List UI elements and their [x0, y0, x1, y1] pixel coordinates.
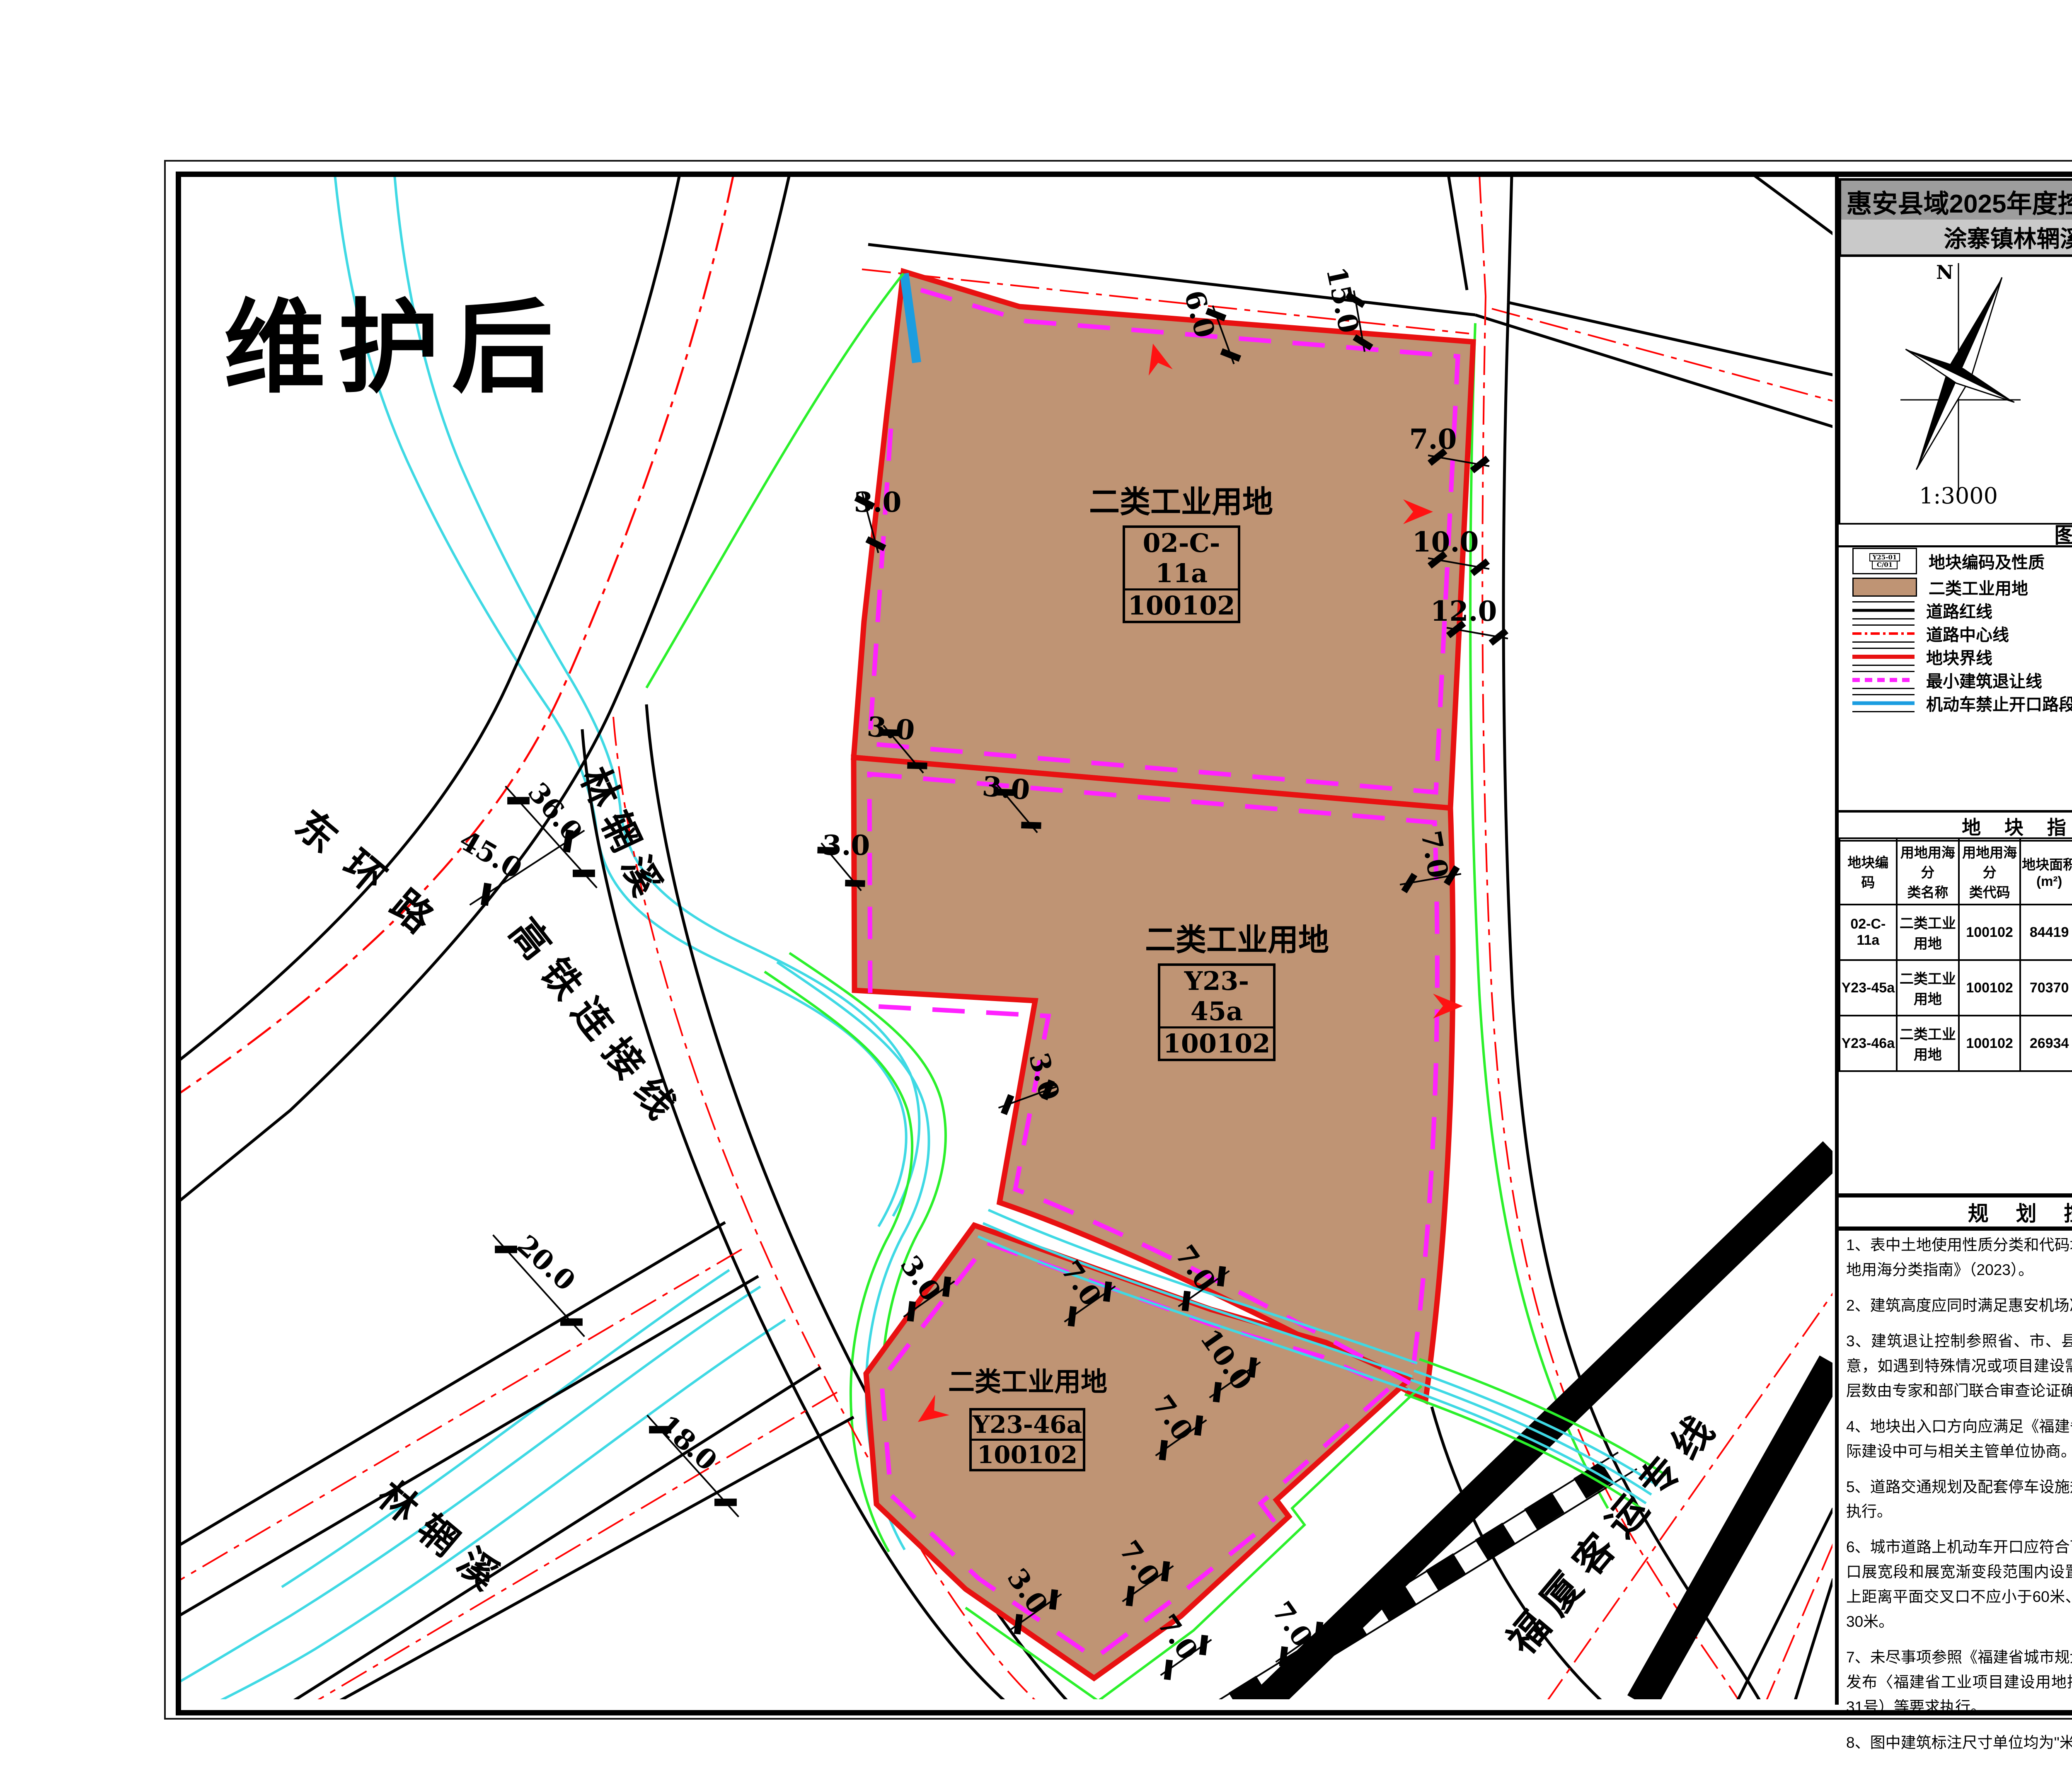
cell: 26934	[2020, 1016, 2072, 1071]
parcel3-code: Y23-46a	[972, 1410, 1083, 1441]
panel-divider	[1835, 172, 1839, 1705]
parcel-code-icon: Y25-01 C/01	[1852, 548, 1917, 574]
cell: 100102	[1959, 1016, 2020, 1071]
table-title: 地 块 指 标 一 览 表	[1839, 810, 2072, 842]
legend-label: 二类工业用地	[1929, 575, 2028, 599]
provision-item: 8、图中建筑标注尺寸单位均为"米"。	[1846, 1730, 2072, 1755]
parcel2-class-code: 100102	[1160, 1028, 1273, 1059]
cell: 84419	[2020, 905, 2072, 960]
cell: 70370	[2020, 960, 2072, 1016]
cell: Y23-45a	[1840, 960, 1897, 1016]
sheet-title: 惠安县域2025年度控规动态维护（第三批次）	[1847, 183, 2072, 220]
setback-line-icon	[1852, 671, 1915, 689]
provision-item: 1、表中土地使用性质分类和代码均采用《国土空间调查、规划、用途管制用地用海分类指…	[1846, 1233, 2072, 1282]
cell: 二类工业 用地	[1897, 1016, 1959, 1071]
cell: 二类工业 用地	[1897, 960, 1959, 1016]
legend-label: 最小建筑退让线	[1926, 668, 2042, 692]
provision-item: 4、地块出入口方向应满足《福建省城市规划管理技术规定》的相关规定，实际建设中可与…	[1846, 1414, 2072, 1464]
parcel-index-table: 地块编码 用地用海分 类名称 用地用海分 类代码 地块面积 (m²) 容积率 建…	[1839, 837, 2072, 1072]
cell: Y23-46a	[1840, 1016, 1897, 1071]
legend-item-industrial: 二类工业用地	[1852, 575, 2028, 599]
sheet-subtitle-bar: 涂寨镇林辋溪东侧地块规划图则	[1839, 220, 2072, 257]
cell: 100102	[1959, 905, 2020, 960]
parcel1-class-code: 100102	[1125, 590, 1238, 621]
table-row: Y23-45a二类工业 用地100102703701.1-3.0≥40≤50—E	[1840, 960, 2072, 1016]
scale-label: 1:3000	[1919, 483, 1998, 509]
parcel1-code-box: 02-C-11a 100102	[1123, 525, 1240, 623]
col-header: 地块编码	[1840, 838, 1897, 905]
provision-item: 2、建筑高度应同时满足惠安机场净空保护要求。	[1846, 1293, 2072, 1318]
sheet-title-bar: 惠安县域2025年度控规动态维护（第三批次）	[1839, 178, 2072, 225]
table-row: Y23-46a二类工业 用地100102269341.1-3.0≥40≤50—S	[1840, 1016, 2072, 1071]
dim-3-divider-b: 3.0	[981, 770, 1031, 806]
legend-label: 地块界线	[1926, 645, 1992, 669]
industrial-swatch-icon	[1852, 578, 1917, 597]
provision-item: 6、城市道路上机动车开口应符合下列规定：交叉口有展宽段时，不得在交叉口展宽段和展…	[1846, 1535, 2072, 1634]
parcel3-class-code: 100102	[972, 1441, 1083, 1469]
no-opening-icon	[1852, 694, 1915, 712]
legend-code-bottom: C/01	[1872, 561, 1898, 569]
legend-item-road-redline: 道路红线	[1852, 598, 1992, 622]
cell: 二类工业 用地	[1897, 905, 1959, 960]
col-header: 用地用海分 类名称	[1897, 838, 1959, 905]
legend-label: 机动车禁止开口路段	[1926, 691, 2072, 715]
legend-item-no-opening: 机动车禁止开口路段	[1852, 691, 2072, 715]
provisions-title: 规 划 控 制 条 文	[1839, 1193, 2072, 1231]
legend-item-parcel-boundary: 地块界线	[1852, 645, 1992, 669]
cell: 02-C-11a	[1840, 905, 1897, 960]
parcel-boundary-icon	[1852, 648, 1915, 666]
legend-title: 图 例	[1839, 521, 2072, 547]
legend-item-parcel-code: Y25-01 C/01 地块编码及性质	[1852, 548, 2045, 574]
legend-label: 地块编码及性质	[1929, 549, 2045, 573]
parcel2-code: Y23-45a	[1160, 966, 1273, 1028]
col-header: 地块面积 (m²)	[2020, 838, 2072, 905]
state-label: 维护后	[224, 265, 566, 412]
legend-label: 道路中心线	[1926, 622, 2009, 646]
provision-item: 7、未尽事项参照《福建省城市规划管理技术规定》、《福建省自然资源厅关于发布〈福建…	[1846, 1645, 2072, 1720]
legend-code-top: Y25-01	[1869, 553, 1900, 562]
parcel2-code-box: Y23-45a 100102	[1158, 963, 1276, 1061]
legend-label: 道路红线	[1926, 598, 1992, 622]
parcel2-use-label: 二类工业用地	[1145, 915, 1329, 960]
provision-item: 3、建筑退让控制参照省、市、县相关技术规定执行，图则中建筑退线为示意，如遇到特殊…	[1846, 1329, 2072, 1403]
provision-item: 5、道路交通规划及配套停车设施规划参照《福建省城市规划管理技术规定》执行。	[1846, 1475, 2072, 1524]
dim-3-west2: 3.0	[823, 829, 870, 861]
legend-item-setback: 最小建筑退让线	[1852, 668, 2042, 692]
parcel1-use-label: 二类工业用地	[1089, 477, 1273, 522]
table-row: 02-C-11a二类工业 用地100102844191.2-3.0≥40≤501…	[1840, 905, 2072, 960]
dim-7-east: 7.0	[1409, 423, 1457, 455]
parcel1-code: 02-C-11a	[1125, 528, 1238, 590]
parcel3-use-label: 二类工业用地	[948, 1361, 1107, 1399]
dim-3-divider-a: 3.0	[866, 710, 916, 747]
north-label: N	[1936, 261, 1953, 283]
sheet-subtitle: 涂寨镇林辋溪东侧地块规划图则	[1944, 220, 2072, 254]
col-header: 用地用海分 类代码	[1959, 838, 2020, 905]
road-redline-icon	[1852, 601, 1915, 619]
table-header-row: 地块编码 用地用海分 类名称 用地用海分 类代码 地块面积 (m²) 容积率 建…	[1840, 838, 2072, 905]
dim-12-east: 12.0	[1431, 595, 1497, 627]
dim-10-east: 10.0	[1412, 526, 1479, 558]
cell: 100102	[1959, 960, 2020, 1016]
provisions-body: 1、表中土地使用性质分类和代码均采用《国土空间调查、规划、用途管制用地用海分类指…	[1846, 1233, 2072, 1766]
plan-sheet: { "page": { "state_label": "维护后" }, "hea…	[0, 0, 2072, 1744]
dim-3-west: 3.0	[854, 486, 902, 518]
road-centerline-icon	[1852, 624, 1915, 643]
parcel3-code-box: Y23-46a 100102	[969, 1408, 1085, 1471]
legend-item-road-centerline: 道路中心线	[1852, 622, 2009, 646]
